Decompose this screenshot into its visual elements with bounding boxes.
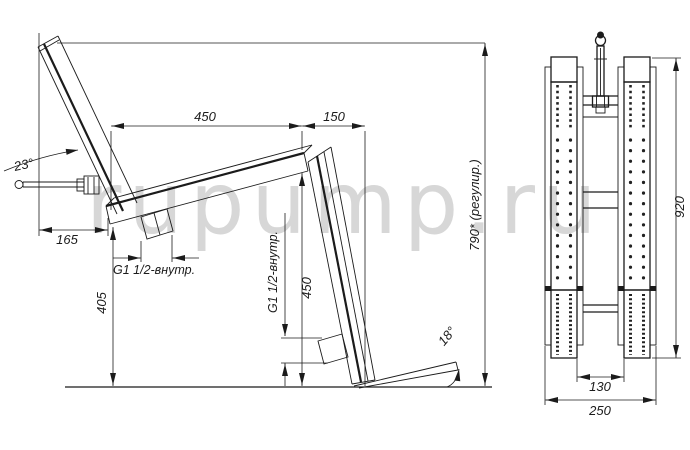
dim-backrest-angle: 23°	[12, 155, 35, 174]
drawing-canvas: rupump.ru	[0, 0, 690, 450]
label-seat-fitting: G1 1/2-внутр.	[113, 263, 195, 277]
dim-rear-overhang: 150	[323, 109, 345, 124]
dim-seat-length: 450	[194, 109, 216, 124]
dim-frame-height: 920	[672, 195, 687, 217]
watermark-text: rupump.ru	[86, 154, 604, 254]
dim-overall-height-adjustable: 790* (регулир.)	[467, 159, 482, 251]
dim-overall-width: 250	[588, 403, 611, 418]
locking-pin	[593, 32, 609, 114]
dim-inner-width: 130	[589, 379, 611, 394]
dim-rear-leg-height: 450	[299, 276, 314, 298]
foot-plate	[354, 362, 458, 388]
dim-seat-height: 405	[94, 291, 109, 313]
technical-drawing: rupump.ru	[0, 0, 690, 450]
label-leg-fitting: G1 1/2-внутр.	[266, 231, 280, 313]
leg-socket	[318, 334, 348, 364]
dim-front-offset: 165	[56, 232, 78, 247]
dim-foot-angle: 18°	[435, 324, 459, 349]
